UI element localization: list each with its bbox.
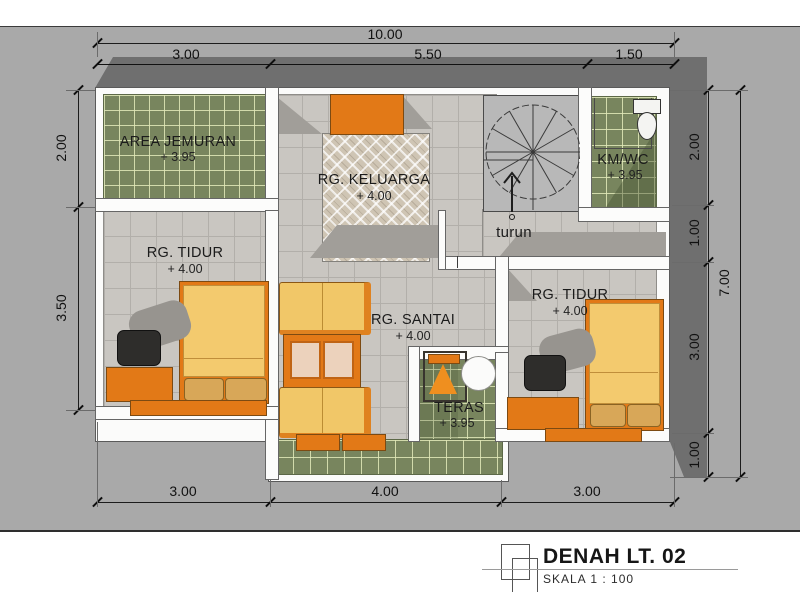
- room-label-rg-santai: RG. SANTAI: [333, 312, 493, 328]
- dim-right-seg1: 2.00: [686, 122, 702, 172]
- room-elev-rg-keluarga: + 4.00: [294, 189, 454, 203]
- office-chair-icon: [524, 355, 566, 391]
- dim-line: [97, 43, 674, 44]
- extension-line: [672, 262, 714, 263]
- dim-left-seg1: 2.00: [53, 123, 69, 173]
- chair-back: [428, 354, 460, 364]
- bed-mattress: [589, 303, 660, 404]
- dim-left-seg2: 3.50: [53, 283, 69, 333]
- extension-line: [670, 90, 748, 91]
- extension-line: [66, 410, 95, 411]
- desk-icon: [106, 367, 173, 402]
- dim-top-seg3: 1.50: [589, 46, 669, 62]
- sofa-icon: [279, 387, 371, 438]
- wall: [95, 198, 279, 212]
- up-arrow-icon: [504, 173, 520, 220]
- table-glass-pane: [290, 341, 321, 379]
- extension-line: [674, 443, 675, 507]
- room-label-rg-tidur-left: RG. TIDUR: [105, 245, 265, 261]
- bed-seam: [589, 372, 658, 373]
- dim-bottom-seg2: 4.00: [345, 483, 425, 499]
- dim-top-total: 10.00: [345, 26, 425, 42]
- room-label-teras: TERAS: [379, 400, 539, 416]
- tv-cabinet-icon: [330, 94, 404, 135]
- bed-seam: [183, 358, 263, 359]
- sofa-seam: [322, 388, 323, 433]
- wall: [578, 207, 670, 222]
- stair-direction-label: turun: [434, 224, 594, 241]
- pillow-icon: [590, 404, 626, 427]
- room-elev-teras: + 3.95: [377, 416, 537, 430]
- extension-line: [97, 32, 98, 57]
- extension-line: [66, 207, 95, 208]
- dim-line: [740, 90, 741, 477]
- wall: [265, 87, 279, 213]
- extension-line: [672, 205, 714, 206]
- dim-line: [78, 90, 79, 410]
- dim-line: [708, 90, 709, 477]
- room-label-area-jemuran: AREA JEMURAN: [98, 134, 258, 150]
- extension-line: [270, 480, 271, 507]
- table-glass-pane: [323, 341, 354, 379]
- bed-mattress: [183, 285, 265, 377]
- extension-line: [670, 477, 748, 478]
- extension-line: [66, 90, 95, 91]
- wall-joint-line: [457, 256, 458, 268]
- office-chair-icon: [117, 330, 161, 366]
- step-mat: [545, 428, 642, 442]
- title-separator-line: [482, 569, 738, 570]
- step-mat: [342, 434, 386, 451]
- pillow-icon: [225, 378, 267, 401]
- dim-right-total: 7.00: [716, 258, 732, 308]
- dim-bottom-seg3: 3.00: [547, 483, 627, 499]
- sofa-seam: [322, 283, 323, 330]
- pillow-icon: [184, 378, 224, 401]
- extension-line: [672, 433, 714, 434]
- room-elev-kmwc: + 3.95: [545, 168, 705, 182]
- room-elev-rg-santai: + 4.00: [333, 329, 493, 343]
- extension-line: [97, 422, 98, 507]
- dim-right-seg3: 3.00: [686, 322, 702, 372]
- dim-line: [97, 502, 674, 503]
- dim-top-seg2: 5.50: [388, 46, 468, 62]
- chair-seat-fan: [429, 364, 457, 394]
- extension-line: [674, 32, 675, 57]
- room-elev-rg-tidur-right: + 4.00: [490, 304, 650, 318]
- dim-right-seg2: 1.00: [686, 208, 702, 258]
- room-label-rg-keluarga: RG. KELUARGA: [294, 172, 454, 188]
- room-elev-area-jemuran: + 3.95: [98, 150, 258, 164]
- room-label-rg-tidur-right: RG. TIDUR: [490, 287, 650, 303]
- floor-plan-canvas: AREA JEMURAN + 3.95 RG. KELUARGA + 4.00 …: [0, 0, 800, 592]
- pillow-icon: [627, 404, 661, 427]
- room-elev-rg-tidur-left: + 4.00: [105, 262, 265, 276]
- terrace-table-icon: [461, 356, 496, 391]
- dim-right-seg4: 1.00: [686, 430, 702, 480]
- overlapping-squares-icon: [512, 558, 538, 592]
- drawing-title: DENAH LT. 02: [543, 545, 686, 569]
- extension-line: [501, 480, 502, 507]
- step-mat: [296, 434, 340, 451]
- dim-top-seg1: 3.00: [146, 46, 226, 62]
- drawing-scale: SKALA 1 : 100: [543, 572, 634, 586]
- wall: [443, 256, 670, 270]
- step-mat: [130, 400, 267, 416]
- room-label-kmwc: KM/WC: [543, 152, 703, 168]
- dim-bottom-seg1: 3.00: [143, 483, 223, 499]
